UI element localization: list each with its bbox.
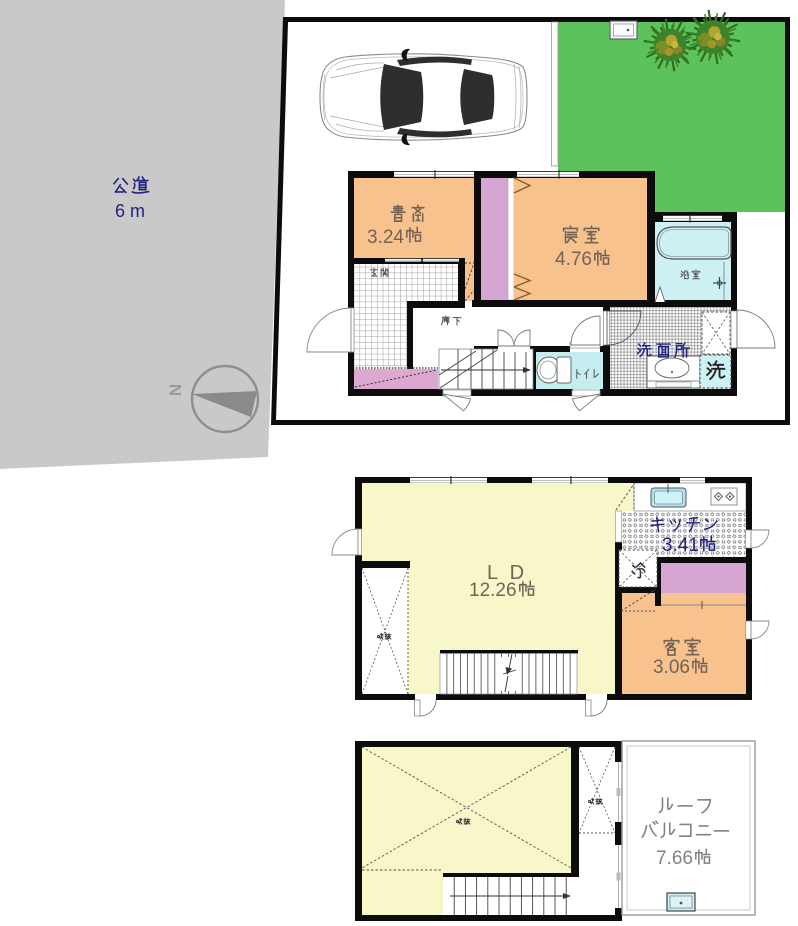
svg-text:7.66: 7.66 — [656, 848, 693, 869]
svg-text:3.24: 3.24 — [367, 227, 404, 248]
svg-text:6 m: 6 m — [115, 201, 145, 221]
svg-text:N: N — [166, 384, 185, 396]
svg-text:4.76: 4.76 — [555, 249, 592, 270]
svg-text:3.06: 3.06 — [653, 657, 690, 678]
svg-text:12.26: 12.26 — [469, 580, 517, 601]
svg-text:3.41: 3.41 — [662, 535, 699, 556]
